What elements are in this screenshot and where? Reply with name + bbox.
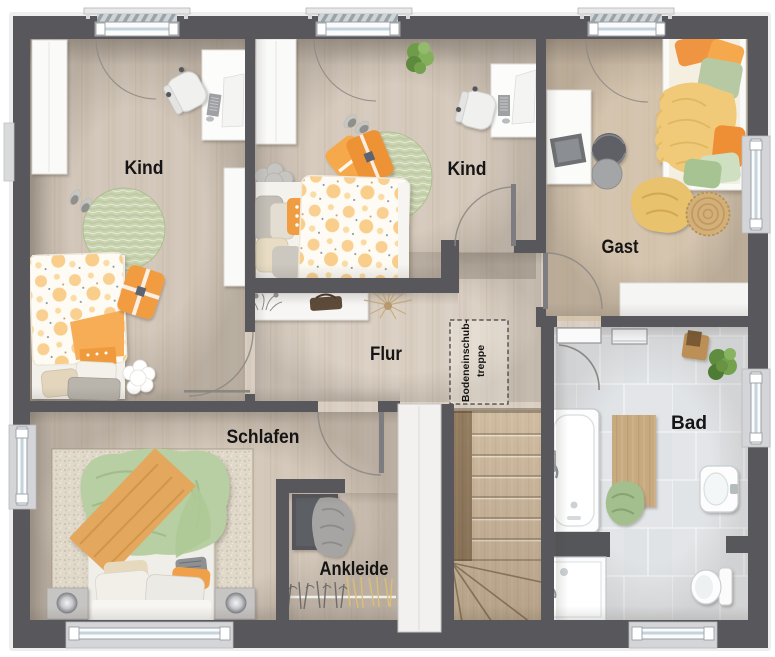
svg-text:Bodeneinschub-: Bodeneinschub-: [460, 319, 472, 402]
svg-text:Kind: Kind: [448, 159, 487, 180]
svg-text:Gast: Gast: [602, 237, 640, 258]
svg-text:Schlafen: Schlafen: [227, 427, 300, 448]
svg-text:Ankleide: Ankleide: [320, 559, 389, 580]
svg-text:Bad: Bad: [671, 412, 707, 434]
svg-text:Flur: Flur: [370, 344, 403, 365]
svg-text:Kind: Kind: [125, 158, 164, 179]
svg-text:treppe: treppe: [475, 345, 487, 377]
